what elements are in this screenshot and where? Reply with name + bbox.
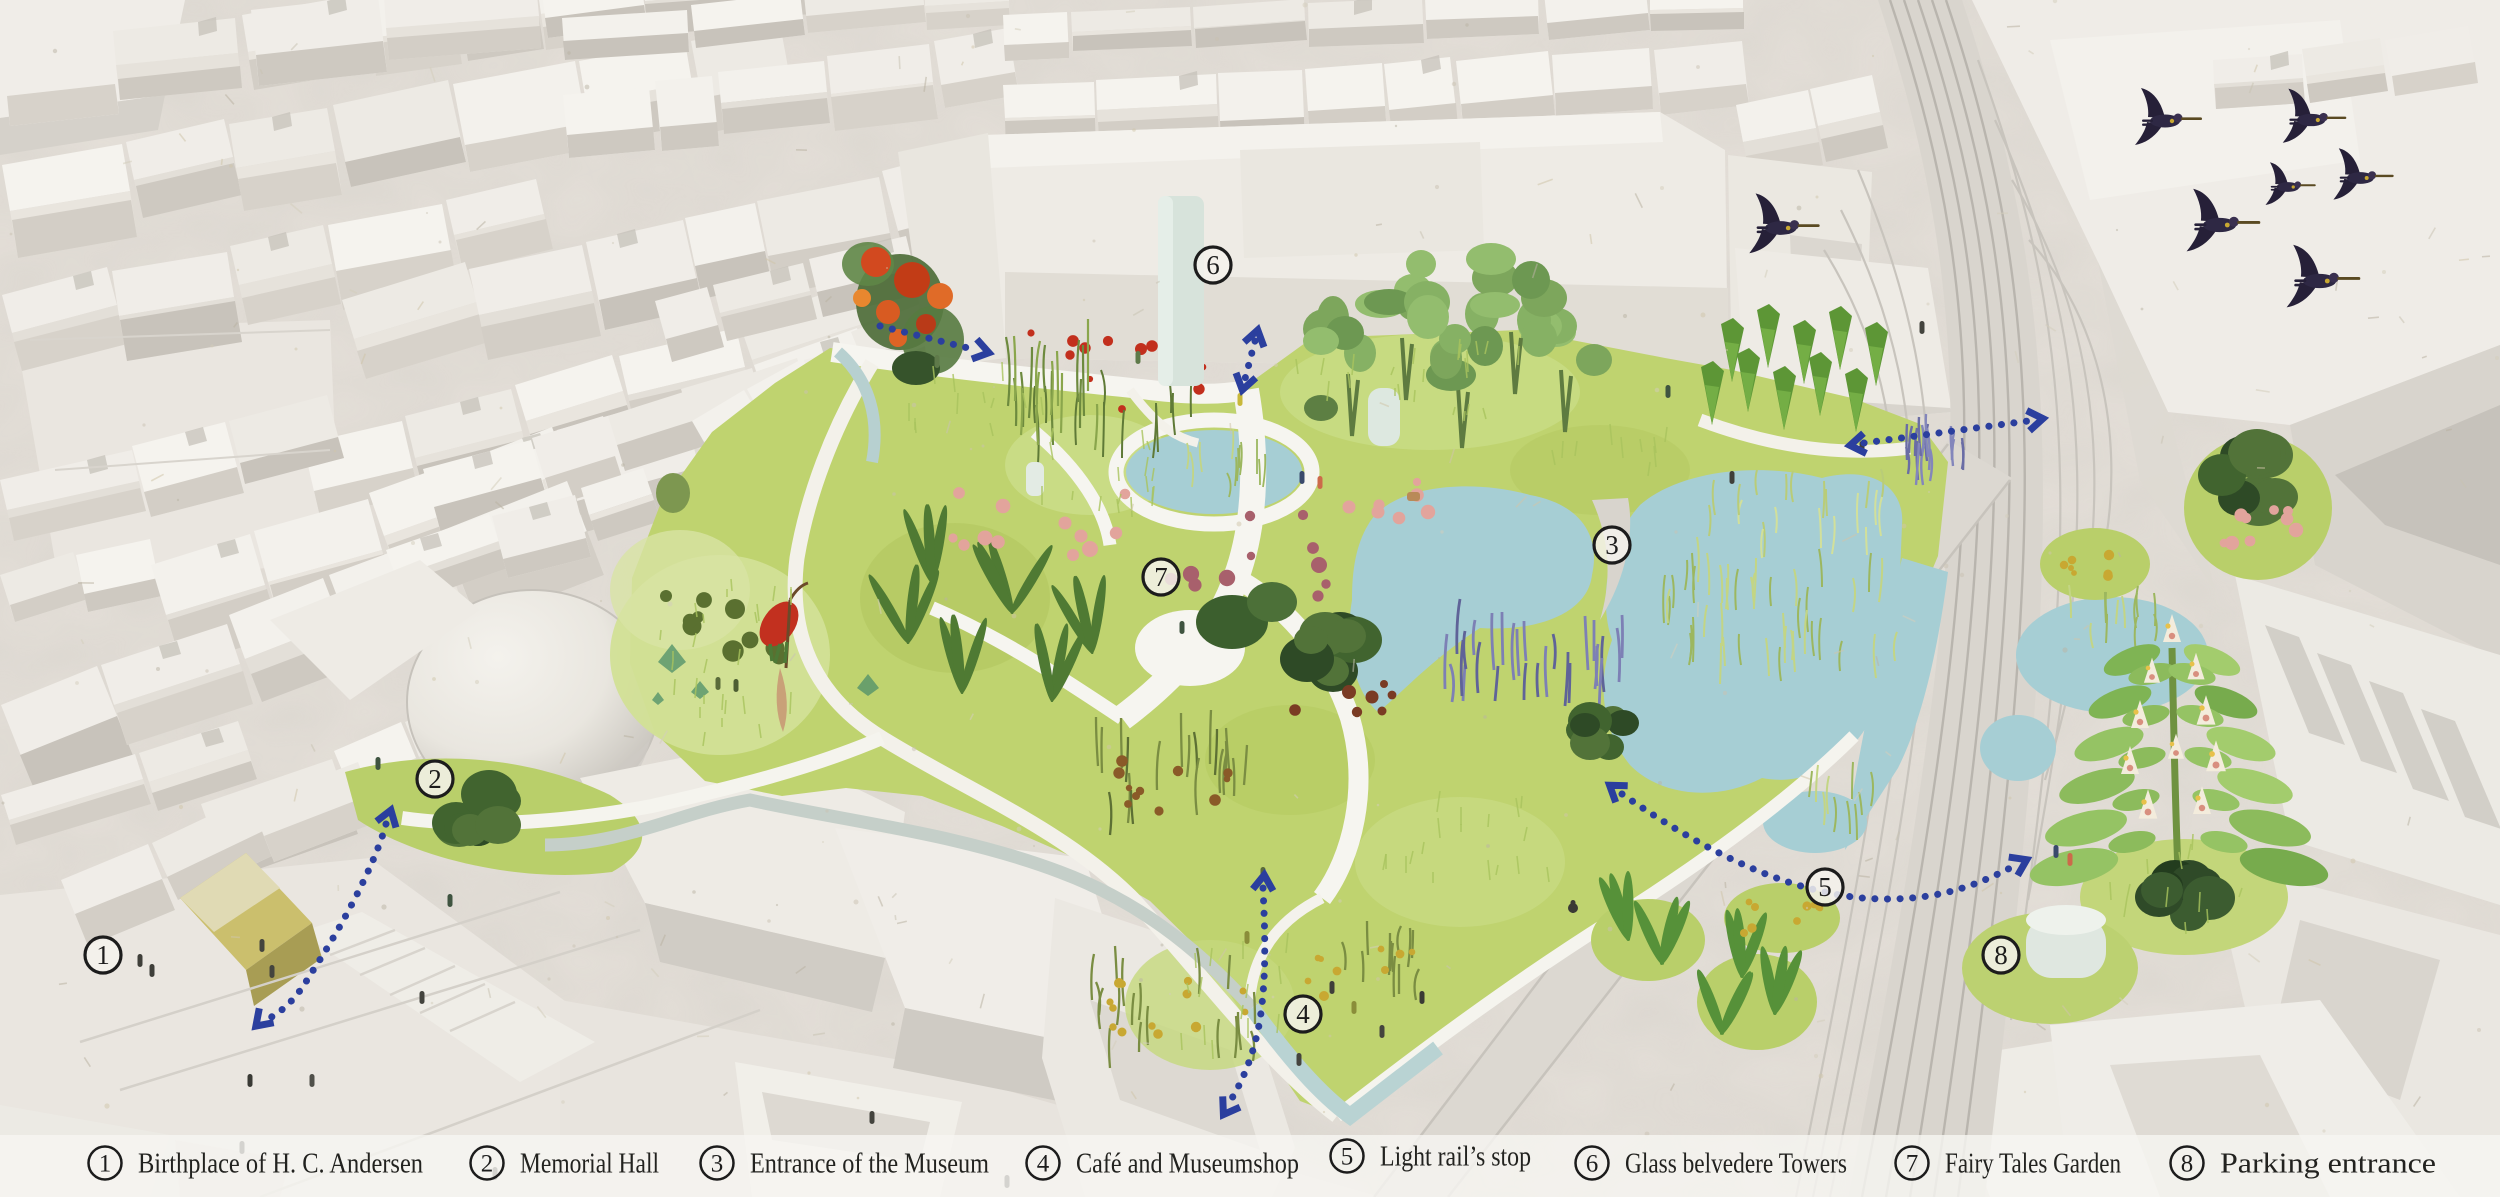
svg-text:7: 7 — [1154, 562, 1168, 592]
svg-text:5: 5 — [1818, 872, 1832, 902]
svg-text:2: 2 — [428, 764, 442, 794]
svg-text:Light rail’s stop: Light rail’s stop — [1380, 1142, 1531, 1173]
svg-text:7: 7 — [1906, 1151, 1919, 1178]
svg-text:4: 4 — [1296, 999, 1310, 1029]
svg-text:Glass belvedere Towers: Glass belvedere Towers — [1625, 1149, 1847, 1180]
svg-text:2: 2 — [481, 1151, 494, 1178]
svg-text:Memorial Hall: Memorial Hall — [520, 1149, 659, 1180]
svg-text:Birthplace of H. C. Andersen: Birthplace of H. C. Andersen — [138, 1149, 423, 1180]
svg-text:Fairy Tales Garden: Fairy Tales Garden — [1945, 1149, 2121, 1180]
svg-text:3: 3 — [1605, 530, 1619, 560]
svg-text:6: 6 — [1206, 250, 1220, 280]
svg-text:4: 4 — [1037, 1151, 1050, 1178]
svg-text:Entrance of the Museum: Entrance of the Museum — [750, 1149, 989, 1180]
svg-text:3: 3 — [711, 1151, 724, 1178]
svg-text:1: 1 — [99, 1151, 112, 1178]
svg-text:6: 6 — [1586, 1151, 1599, 1178]
svg-text:1: 1 — [96, 940, 110, 970]
svg-text:Café and Museumshop: Café and Museumshop — [1076, 1149, 1299, 1180]
svg-text:8: 8 — [1994, 940, 2008, 970]
svg-text:5: 5 — [1341, 1144, 1354, 1171]
svg-text:Parking entrance: Parking entrance — [2220, 1149, 2436, 1180]
svg-text:8: 8 — [2181, 1151, 2194, 1178]
